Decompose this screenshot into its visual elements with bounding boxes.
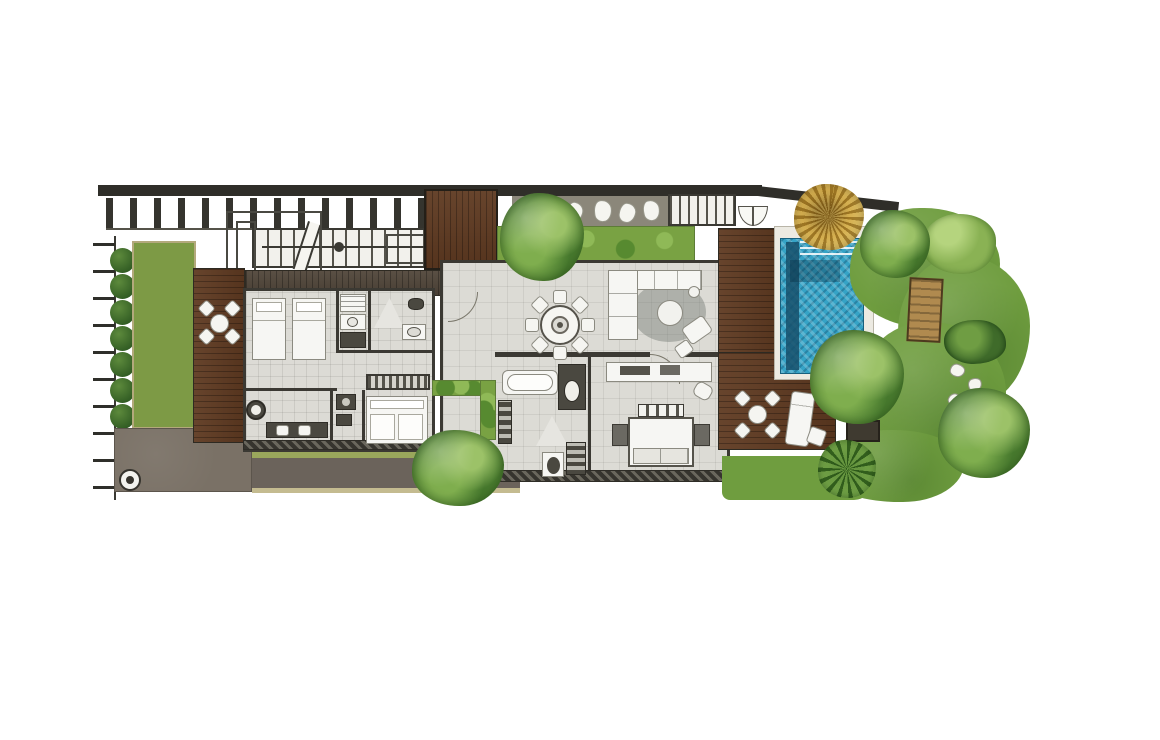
desk-item	[660, 365, 680, 375]
garden-tree-icon	[500, 193, 584, 281]
daybed-pillow	[370, 400, 424, 409]
utility-fixture-dot	[342, 398, 350, 406]
daybed-cushion	[398, 414, 423, 440]
golden-tree-icon	[794, 184, 864, 250]
stair-landing-inner	[236, 221, 256, 275]
double-door-leaf	[738, 206, 753, 226]
water-jar-center	[126, 476, 134, 484]
pool-bench-shadow	[790, 260, 840, 282]
twin-bed-pillow	[256, 302, 282, 312]
sofa-icon	[608, 270, 638, 340]
wardrobe	[366, 374, 430, 390]
left-courtyard-deck	[193, 268, 245, 443]
pool-deck-strip	[718, 228, 780, 358]
palm-tree-icon	[818, 440, 876, 498]
twin-bed-foldline	[253, 320, 285, 321]
wall-living-master	[495, 352, 728, 357]
nightstand-icon	[612, 424, 628, 446]
bed-foot	[633, 448, 689, 464]
bed-headboard	[638, 404, 684, 417]
entry-deck	[424, 189, 498, 270]
wall	[336, 350, 433, 353]
wall-bath-bedroom	[588, 357, 591, 479]
dining-table-dot	[557, 322, 563, 328]
kitchenette-counter	[340, 332, 366, 348]
vanity-stool-icon	[276, 425, 289, 436]
bath-vanity-basin	[564, 380, 580, 402]
nightstand-icon	[694, 424, 710, 446]
dining-chair-icon	[553, 290, 567, 304]
twin-bed-pillow	[296, 302, 322, 312]
side-lawn	[132, 241, 196, 429]
dining-chair-icon	[525, 318, 539, 332]
guest-toilet-icon	[408, 298, 424, 310]
foyer-basin-bowl	[251, 405, 261, 415]
double-door-leaf	[753, 206, 768, 226]
corridor-planter	[480, 380, 496, 440]
upper-staircase	[668, 194, 736, 226]
wall	[245, 388, 337, 391]
bath-cabinet	[566, 442, 586, 475]
grass-mound	[922, 214, 996, 274]
utility-fixture	[336, 414, 352, 426]
deck-table-icon	[210, 314, 229, 333]
daybed-cushion	[370, 414, 395, 440]
bath-shelf	[498, 400, 512, 444]
kitchenette-sink-bowl	[347, 317, 358, 327]
guest-basin-bowl	[407, 327, 421, 337]
garden-tree-icon	[810, 330, 904, 424]
floor-plan-canvas	[0, 0, 1160, 740]
kitchenette-unit	[340, 294, 366, 312]
dining-chair-icon	[553, 346, 567, 360]
bathtub-bowl	[507, 374, 553, 391]
side-table-icon	[688, 286, 700, 298]
desk-item	[620, 366, 650, 375]
toilet-bowl	[547, 457, 560, 474]
deck-table-icon	[748, 405, 767, 424]
wall	[336, 290, 339, 352]
coffee-table-icon	[657, 300, 683, 326]
dining-chair-icon	[581, 318, 595, 332]
garden-tree-icon	[938, 388, 1030, 478]
master-south-wall	[495, 470, 728, 482]
garden-shrub	[944, 320, 1006, 364]
wooden-garden-lounger	[906, 277, 943, 343]
stair-direction-dot	[334, 242, 344, 252]
twin-bed-foldline	[293, 320, 325, 321]
wall	[368, 290, 371, 352]
garden-tree-icon	[412, 430, 504, 506]
vanity-stool-icon	[298, 425, 311, 436]
garden-tree-icon	[860, 210, 930, 278]
